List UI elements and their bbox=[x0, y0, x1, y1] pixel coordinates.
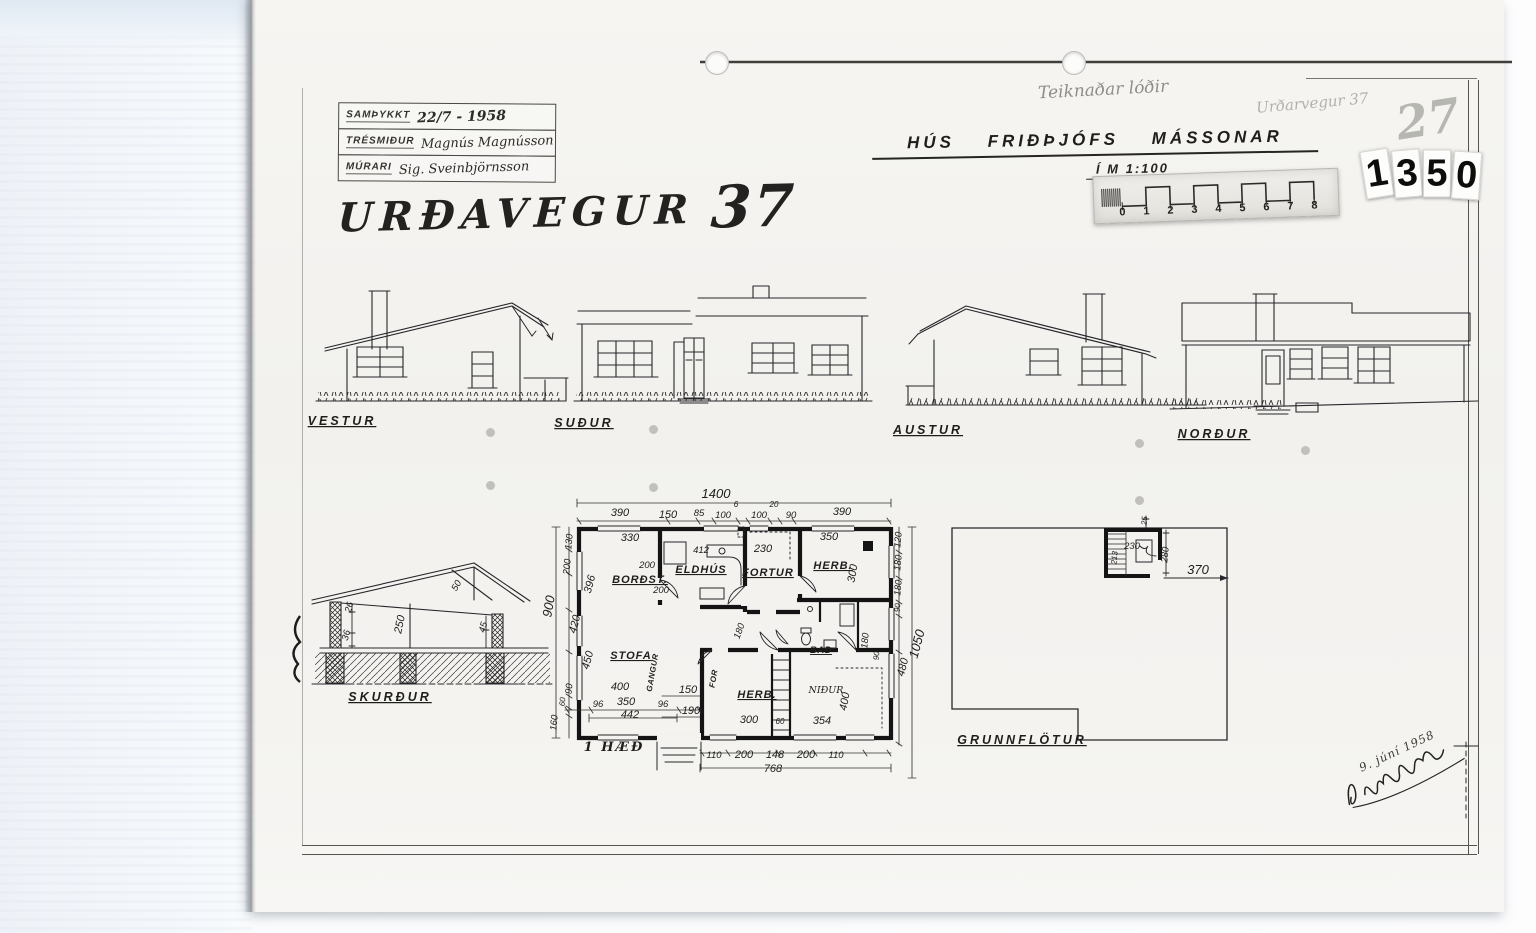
dimension-label: 60 bbox=[776, 717, 785, 726]
dimension-label: 45 bbox=[477, 620, 491, 634]
street-title: URÐAVEGUR37 bbox=[337, 166, 798, 245]
dimension-label: 300 bbox=[740, 714, 759, 726]
drawing-caption: AUSTUR bbox=[892, 423, 963, 437]
dimension-label: 90 bbox=[786, 510, 797, 521]
archive-number-digit: 5 bbox=[1423, 149, 1451, 197]
plan-kitchen-fittings bbox=[664, 527, 790, 599]
dimension-label: 350 bbox=[617, 696, 636, 708]
dimension-label: 150 bbox=[679, 684, 698, 696]
staple-dot bbox=[649, 425, 658, 434]
plan-entrance-steps bbox=[657, 742, 701, 770]
title-block-row: TRÉSMIÐURMagnús Magnússon bbox=[338, 128, 556, 157]
dimension-label: 36 bbox=[340, 628, 354, 642]
dimension-label: 180 bbox=[892, 579, 904, 596]
dimension-label: 50 bbox=[449, 578, 464, 593]
dimension-label: 396 bbox=[582, 573, 599, 595]
dimension-label: 110 bbox=[828, 750, 844, 761]
dimension-label: 370 bbox=[1187, 562, 1209, 577]
dimension-label: 213 bbox=[1109, 550, 1119, 566]
room-label: BAÐ bbox=[810, 645, 832, 656]
dimension-label: 330 bbox=[621, 532, 640, 544]
drawing-caption: NORÐUR bbox=[1178, 427, 1251, 441]
drawing-caption: GRUNNFLÖTUR bbox=[957, 732, 1087, 747]
staple-dot bbox=[486, 481, 495, 490]
dimension-label: 412 bbox=[693, 545, 710, 556]
drawing-caption: VESTUR bbox=[308, 414, 377, 428]
room-label: ELDHÚS bbox=[675, 563, 726, 576]
ruler-number: 0 bbox=[1110, 206, 1134, 219]
title-block-value: 22/7 - 1958 bbox=[417, 107, 506, 125]
dimension-label: 768 bbox=[764, 763, 783, 775]
dimension-label: 400 bbox=[611, 681, 630, 693]
dimension-label: 180 bbox=[859, 632, 871, 649]
dimension-label: 100 bbox=[751, 510, 768, 521]
dimension-label: 480 bbox=[895, 656, 912, 678]
dimension-label: 230 bbox=[753, 543, 773, 555]
dimension-label: 200 bbox=[796, 749, 816, 761]
drawing-caption: 1 HÆÐ bbox=[584, 740, 645, 755]
dimension-label: 60 bbox=[558, 696, 568, 706]
dimension-label: 90 bbox=[564, 682, 576, 694]
dimension-label: 6 bbox=[734, 500, 739, 509]
drawing-caption: SUÐUR bbox=[554, 416, 613, 430]
punch-hole-right bbox=[1062, 51, 1086, 75]
room-label: STOFA bbox=[610, 650, 651, 662]
dimension-label: 390 bbox=[833, 506, 852, 518]
scanned-sheet: VESTURSUÐURAUSTURNORÐURSKURÐURGRUNNFLÖTU… bbox=[0, 0, 1536, 933]
room-label: FORTUR bbox=[742, 567, 794, 579]
annotation-layer: VESTURSUÐURAUSTURNORÐURSKURÐURGRUNNFLÖTU… bbox=[308, 414, 1251, 775]
ruler-number: 8 bbox=[1302, 199, 1326, 212]
elevation-nordur bbox=[1170, 294, 1478, 414]
room-label: BORÐST. bbox=[612, 574, 668, 586]
archive-number-digit: 0 bbox=[1451, 150, 1482, 200]
elevation-vestur bbox=[316, 291, 568, 401]
dimension-label: NIÐUR bbox=[808, 685, 844, 696]
ruler-number: 5 bbox=[1230, 202, 1254, 215]
dimension-label: 85 bbox=[694, 508, 705, 519]
title-block-row: SAMÞYKKT22/7 - 1958 bbox=[338, 102, 556, 131]
title-block: SAMÞYKKT22/7 - 1958TRÉSMIÐURMagnús Magnú… bbox=[338, 103, 557, 183]
elevation-sudur bbox=[574, 286, 872, 403]
dimension-label: 1050 bbox=[906, 627, 928, 660]
dimension-label: 110 bbox=[706, 750, 722, 761]
room-label: FOR bbox=[708, 669, 720, 689]
dimension-label: 400 bbox=[838, 691, 853, 712]
dimension-label: 900 bbox=[539, 593, 558, 618]
title-block-label: TRÉSMIÐUR bbox=[346, 135, 415, 148]
dimension-label: 90 bbox=[872, 650, 882, 660]
dimension-label: 250 bbox=[392, 613, 408, 635]
staple-dot bbox=[649, 483, 658, 492]
dimension-label: 280 bbox=[1159, 546, 1171, 564]
dimension-label: 90 bbox=[893, 602, 903, 612]
staple-dot bbox=[486, 428, 495, 437]
room-label: HERB. bbox=[813, 560, 852, 572]
archive-number-digit: 3 bbox=[1391, 148, 1423, 198]
title-block-label: MÚRARI bbox=[346, 161, 392, 174]
room-label: HERB. bbox=[737, 689, 776, 701]
ruler-number: 2 bbox=[1158, 204, 1182, 217]
foundation-plan bbox=[952, 516, 1228, 740]
dimension-label: 148 bbox=[766, 749, 785, 761]
dimension-label: 96 bbox=[658, 699, 669, 710]
dimension-label: 200 bbox=[561, 558, 573, 576]
archive-number-digit: 1 bbox=[1359, 148, 1394, 200]
pencil-note-number: 27 bbox=[1392, 87, 1464, 150]
title-block-value: Magnús Magnússon bbox=[421, 133, 554, 152]
dimension-label: 120 bbox=[892, 531, 904, 548]
dimension-label: 20 bbox=[769, 500, 779, 509]
ruler-number: 7 bbox=[1278, 200, 1302, 213]
dimension-label: 200 bbox=[652, 585, 670, 596]
archive-number: 1350 bbox=[1362, 146, 1482, 198]
dimension-label: 150 bbox=[659, 509, 678, 521]
dimension-label: 180 bbox=[732, 621, 748, 640]
staple-dot bbox=[1135, 496, 1144, 505]
elevation-austur bbox=[906, 294, 1206, 405]
dimension-label: 130 bbox=[563, 533, 575, 550]
ruler-number: 3 bbox=[1182, 203, 1206, 216]
ruler-number: 4 bbox=[1206, 203, 1230, 216]
dimension-label: 160 bbox=[548, 714, 560, 731]
dimension-label: 350 bbox=[820, 531, 839, 543]
plan-bath-fixtures bbox=[801, 541, 873, 648]
title-block-label: SAMÞYKKT bbox=[346, 109, 410, 122]
staple-dot bbox=[1301, 446, 1310, 455]
edge-scribble-mark bbox=[293, 616, 300, 682]
section-skurdur bbox=[312, 563, 552, 684]
dimension-label: 180 bbox=[892, 554, 904, 571]
dimension-label: 190 bbox=[682, 705, 701, 717]
punch-hole-left bbox=[705, 51, 729, 75]
dimension-label: 200 bbox=[638, 560, 656, 571]
ruler-number: 1 bbox=[1134, 205, 1158, 218]
ruler-number: 6 bbox=[1254, 201, 1278, 214]
dimension-label: 442 bbox=[621, 709, 639, 721]
staple-dot bbox=[1135, 439, 1144, 448]
drawing-caption: SKURÐUR bbox=[348, 690, 432, 704]
dimension-label: 26 bbox=[343, 600, 357, 615]
dimension-label: 96 bbox=[593, 699, 604, 710]
street-title-number: 37 bbox=[710, 171, 798, 241]
dimension-label: 230 bbox=[1123, 541, 1141, 552]
dimension-label: 354 bbox=[813, 715, 831, 727]
dimension-label: 200 bbox=[734, 749, 754, 761]
scale-ruler: 012345678 bbox=[1092, 168, 1340, 225]
dimension-label: 1400 bbox=[702, 486, 732, 501]
dimension-label: 450 bbox=[580, 649, 597, 671]
street-title-text: URÐAVEGUR bbox=[337, 186, 696, 242]
dimension-label: 100 bbox=[715, 510, 732, 521]
dimension-label: 390 bbox=[611, 507, 630, 519]
dimension-label: 25 bbox=[1140, 515, 1150, 526]
